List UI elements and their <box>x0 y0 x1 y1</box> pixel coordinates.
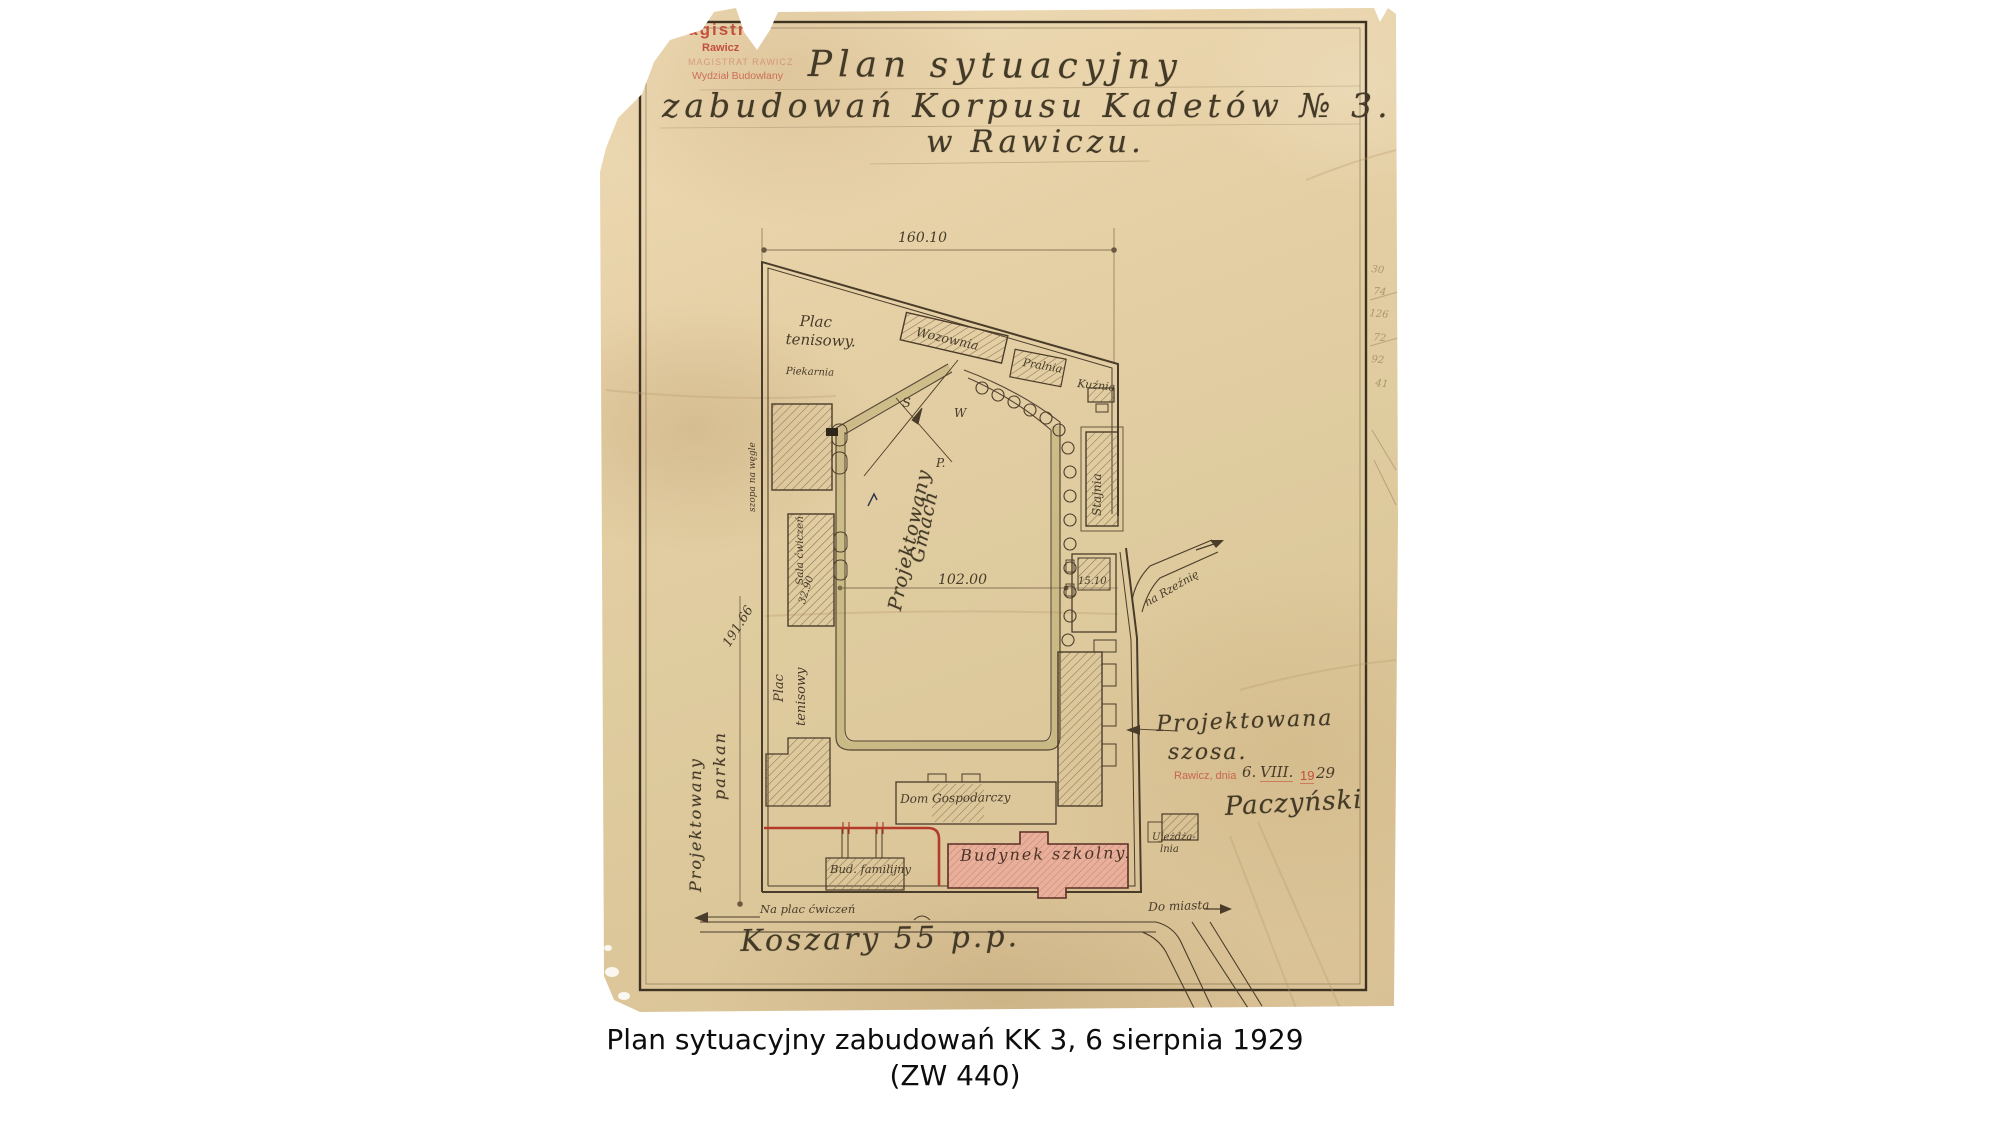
caption-line1: Plan sytuacyjny zabudowań KK 3, 6 sierpn… <box>455 1022 1455 1058</box>
dimension-top: 160.10 <box>898 230 947 246</box>
ink-check-mark <box>868 494 877 506</box>
label-stajnia: Stajnia <box>1090 473 1104 516</box>
dimension-middle: 102.00 <box>938 572 987 588</box>
label-ujezdzalnia-2: lnia <box>1160 844 1179 855</box>
label-projektowany-parkan-2: parkan <box>710 731 729 800</box>
date-year-printed: 19 <box>1300 768 1314 784</box>
date-day: 6. <box>1242 763 1256 781</box>
label-dom-gospodarczy: Dom Gospodarczy <box>900 790 1011 806</box>
building-southwest-annex <box>766 738 830 806</box>
worn-spots <box>604 945 630 1000</box>
caption-line2: (ZW 440) <box>455 1058 1455 1094</box>
ring-road-tint <box>840 368 1056 746</box>
margin-note: 126 <box>1369 308 1389 321</box>
title-line1: Plan sytuacyjny <box>808 44 1183 88</box>
label-plac-tenisowy-side-1: Plac <box>772 674 787 702</box>
tree-row <box>976 382 1076 646</box>
margin-pencil-lines <box>1370 292 1398 505</box>
label-na-plac-cwiczen: Na plac ćwiczeń <box>760 902 855 916</box>
margin-note: 41 <box>1375 378 1389 390</box>
label-plac-tenisowy-2: tenisowy. <box>785 330 856 350</box>
date-year-handwritten: 29 <box>1316 764 1335 782</box>
title-line2: zabudowań Korpusu Kadetów № 3. <box>662 86 1393 125</box>
margin-note: 30 <box>1371 264 1385 276</box>
label-plac-tenisowy-side-2: tenisowy <box>794 668 809 726</box>
label-projektowany-parkan-1: Projektowany <box>686 757 705 892</box>
label-szopa-na-wegle: szopa na węgle <box>748 442 758 512</box>
label-ujezdzalnia-1: Ujeżdża- <box>1152 832 1196 843</box>
archival-scan-page: Magistrat Rawicz MAGISTRAT RAWICZ Wydzia… <box>0 0 2000 1125</box>
label-piekarnia: Piekarnia <box>786 366 835 379</box>
margin-note: 72 <box>1373 332 1387 344</box>
label-projektowana-szosa-2: szosa. <box>1168 740 1248 765</box>
date-month: VIII. <box>1260 763 1293 782</box>
building-piekarnia <box>772 404 832 490</box>
compass-letter-3: P. <box>936 456 945 470</box>
title-line3: w Rawiczu. <box>926 124 1145 160</box>
label-plac-tenisowy-1: Plac <box>799 312 832 331</box>
figure-caption: Plan sytuacyjny zabudowań KK 3, 6 sierpn… <box>455 1022 1455 1094</box>
label-budynek-szkolny: Budynek szkolny. <box>960 843 1132 865</box>
ring-road <box>836 364 1060 750</box>
compass-letter-2: W <box>954 406 966 420</box>
plan-drawing <box>0 0 2000 1125</box>
margin-note: 74 <box>1373 286 1387 298</box>
registry-stamp-line1: Magistrat <box>672 20 766 40</box>
label-koszary: Koszary 55 p.p. <box>740 919 1020 959</box>
building-budynek-szkolny <box>948 832 1128 898</box>
label-bud-familijny: Bud. familijny <box>830 862 911 876</box>
label-do-miasta: Do miasta <box>1148 898 1210 914</box>
label-sala-cwiczen: Sala ćwiczeń <box>794 516 806 585</box>
compass-letter-1: S <box>902 396 911 411</box>
scanned-plan-paper: Magistrat Rawicz MAGISTRAT RAWICZ Wydzia… <box>0 0 2000 1125</box>
registry-stamp-line2: Rawicz <box>702 42 739 54</box>
dimension-east-building: 15.10 <box>1078 576 1107 587</box>
registry-stamp-line4: Wydział Budowlany <box>692 70 783 82</box>
margin-note: 92 <box>1371 354 1385 366</box>
building-east-main <box>1058 652 1102 806</box>
date-stamp-prefix: Rawicz, dnia <box>1174 770 1236 782</box>
registry-stamp-line3: MAGISTRAT RAWICZ <box>688 57 793 67</box>
